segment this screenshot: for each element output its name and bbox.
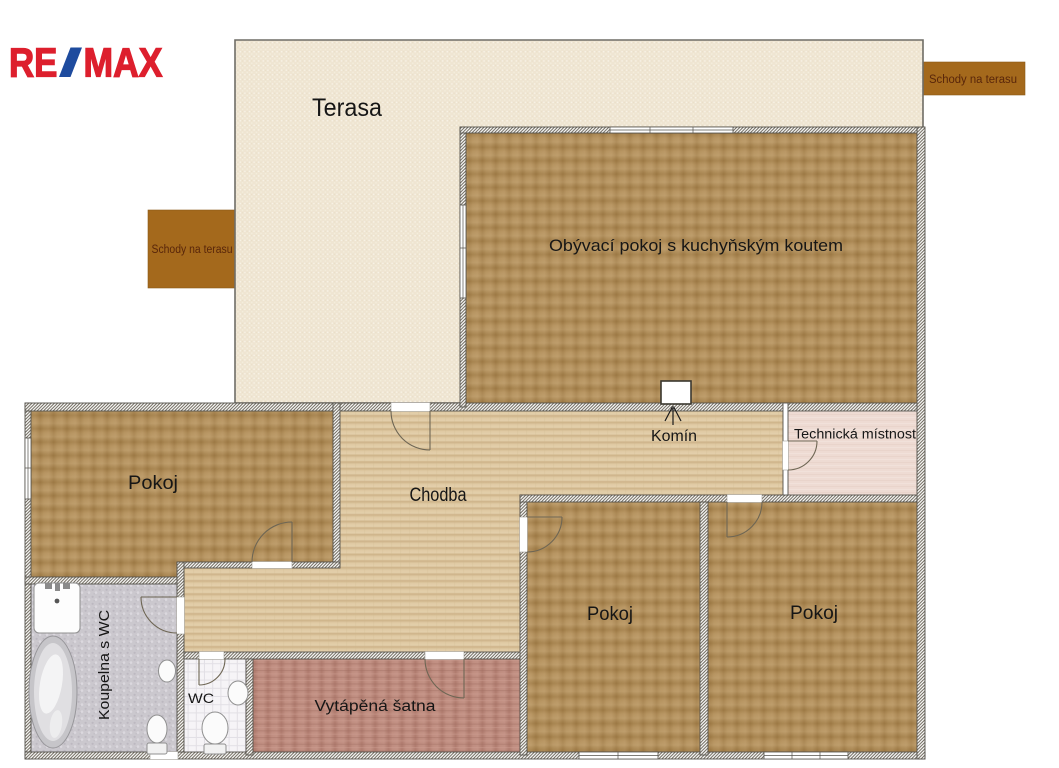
svg-text:Vytápěná šatna: Vytápěná šatna [315,698,436,715]
svg-text:Pokoj: Pokoj [128,473,178,494]
svg-text:Schody na terasu: Schody na terasu [929,74,1017,86]
svg-text:Schody na terasu: Schody na terasu [152,244,233,256]
svg-text:Obývací pokoj s kuchyňským kou: Obývací pokoj s kuchyňským koutem [549,236,843,255]
svg-text:WC: WC [188,690,214,706]
svg-text:Koupelna s WC: Koupelna s WC [96,610,113,720]
svg-text:Komín: Komín [651,428,697,445]
svg-text:Terasa: Terasa [312,94,382,122]
svg-text:Pokoj: Pokoj [587,604,633,625]
svg-text:Technická místnost: Technická místnost [794,427,916,442]
svg-text:Pokoj: Pokoj [790,603,838,624]
svg-text:RE: RE [9,40,57,86]
svg-text:MAX: MAX [84,40,163,86]
svg-text:Chodba: Chodba [410,485,467,506]
